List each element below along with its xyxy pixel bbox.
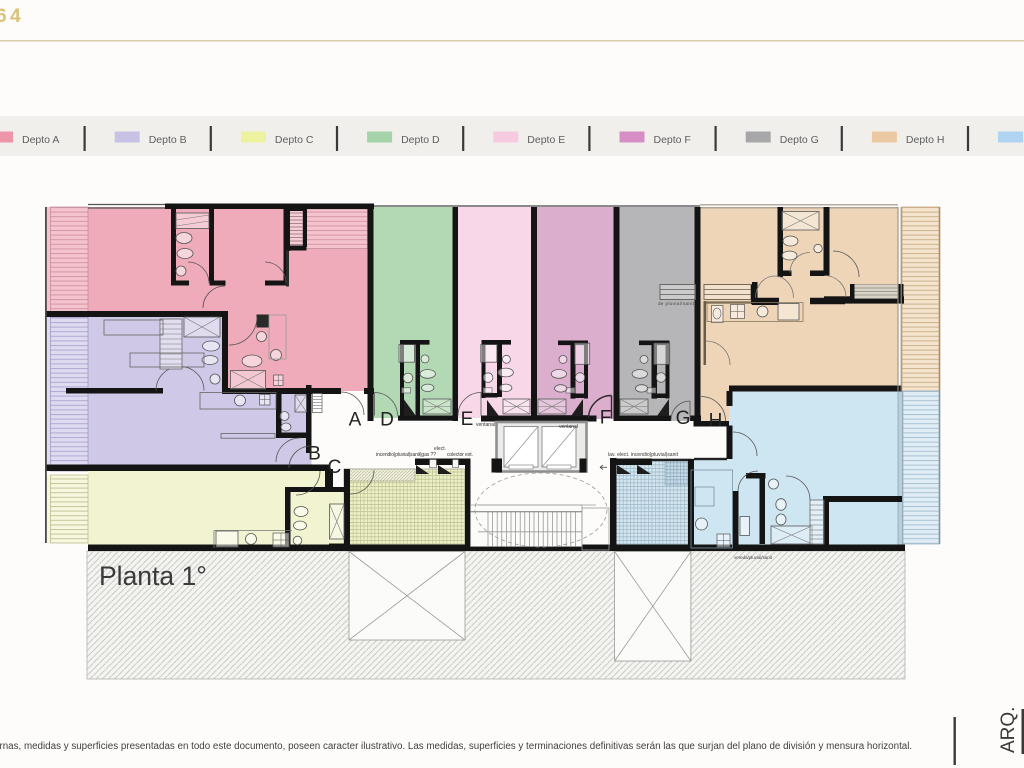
svg-text:ernas, medidas y superficies p: ernas, medidas y superficies presentadas… (0, 741, 912, 752)
svg-text:vereda/pluvial/sanit: vereda/pluvial/sanit (734, 555, 773, 560)
svg-text:A: A (349, 410, 362, 431)
svg-text:Planta 1°: Planta 1° (99, 561, 207, 591)
svg-text:H: H (709, 411, 723, 432)
svg-text:E: E (461, 409, 474, 430)
svg-text:F: F (600, 408, 612, 429)
svg-text:Depto A: Depto A (22, 134, 59, 146)
svg-text:Depto D: Depto D (401, 134, 440, 146)
svg-text:lav. elect. incendio|pluvial: lav. elect. incendio|pluvial|sanit (608, 452, 679, 458)
svg-text:ventanal: ventanal (476, 422, 495, 428)
svg-text:D: D (380, 410, 394, 431)
svg-text:G: G (676, 408, 691, 429)
svg-text:ARQ.: ARQ. (998, 707, 1019, 753)
svg-text:de pluvial/sanit: de pluvial/sanit (658, 301, 695, 306)
svg-text:Depto G: Depto G (780, 134, 819, 146)
svg-text:ventanal: ventanal (559, 424, 578, 430)
svg-text:64: 64 (0, 6, 24, 27)
svg-text:incendio|pluvial|sanit|gas ??: incendio|pluvial|sanit|gas ?? (376, 452, 436, 458)
svg-text:B: B (308, 444, 321, 465)
svg-text:Depto H: Depto H (906, 134, 945, 146)
svg-text:colector ext.: colector ext. (447, 452, 473, 458)
svg-text:Depto C: Depto C (275, 134, 314, 146)
svg-text:Depto F: Depto F (654, 134, 691, 146)
svg-text:elect.: elect. (434, 446, 446, 452)
svg-text:Depto B: Depto B (149, 134, 187, 146)
svg-text:Depto E: Depto E (527, 134, 565, 146)
svg-text:C: C (328, 457, 342, 478)
